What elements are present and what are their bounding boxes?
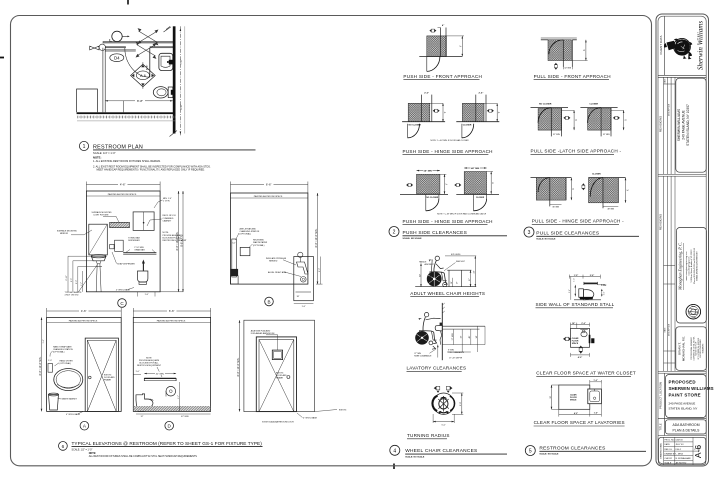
svg-text:(OPTIONAL): (OPTIONAL) bbox=[240, 233, 252, 236]
svg-text:36” MIN: 36” MIN bbox=[552, 207, 559, 209]
svg-text:SHERWIN WILLIAMS: SHERWIN WILLIAMS bbox=[669, 386, 714, 391]
svg-text:MEET HANDICAP REQUIREMENTS / F: MEET HANDICAP REQUIREMENTS / FUNCTIONALI… bbox=[97, 169, 206, 172]
svg-text:240 PAGE AVENUE: 240 PAGE AVENUE bbox=[682, 110, 686, 140]
svg-text:NO CLOSER: NO CLOSER bbox=[539, 104, 552, 106]
svg-text:1’-0”: 1’-0” bbox=[574, 275, 578, 277]
svg-text:PROVIDE ADEQUATE: PROVIDE ADEQUATE bbox=[139, 359, 160, 362]
svg-text:240 PAGE AVENUE: 240 PAGE AVENUE bbox=[669, 402, 696, 406]
svg-text:Sherwin Williams: Sherwin Williams bbox=[697, 21, 705, 70]
svg-text:RESTROOM PLAN: RESTROOM PLAN bbox=[93, 144, 143, 150]
svg-text:SCALE: NO SCALE: SCALE: NO SCALE bbox=[536, 238, 556, 241]
svg-text:SCALE: NO SCALE: SCALE: NO SCALE bbox=[405, 455, 425, 458]
svg-text:SCALE: SCALE bbox=[664, 462, 671, 465]
svg-text:SURFACE MOUNTED: SURFACE MOUNTED bbox=[57, 229, 78, 232]
svg-text:3: 3 bbox=[528, 230, 531, 236]
svg-text:1’-5”: 1’-5” bbox=[603, 291, 605, 295]
svg-text:8’-0” / 10’-0” MIN.: 8’-0” / 10’-0” MIN. bbox=[176, 231, 179, 250]
svg-text:ADA BATHROOM: ADA BATHROOM bbox=[672, 423, 699, 427]
svg-text:DATE: DATE bbox=[664, 443, 670, 446]
svg-text:27”: 27” bbox=[457, 281, 459, 284]
svg-text:CLOSER: CLOSER bbox=[592, 174, 601, 176]
svg-text:1’-0”: 1’-0” bbox=[48, 360, 52, 362]
svg-text:8’-8”: 8’-8” bbox=[137, 99, 143, 103]
svg-text:AS NOTED: AS NOTED bbox=[676, 462, 687, 465]
svg-text:1’-6”: 1’-6” bbox=[145, 294, 149, 296]
svg-text:KNEE CLEARANCE: KNEE CLEARANCE bbox=[414, 355, 432, 358]
svg-text:ANTI-STRAT AND: ANTI-STRAT AND bbox=[240, 228, 257, 231]
svg-text:2’-9”: 2’-9” bbox=[569, 289, 571, 293]
svg-text:1’-0”: 1’-0” bbox=[231, 243, 235, 245]
svg-text:7’-0”: 7’-0” bbox=[179, 59, 183, 64]
svg-text:1’-6”: 1’-6” bbox=[593, 380, 597, 382]
svg-text:SURFACE MOUNTED: SURFACE MOUNTED bbox=[92, 211, 113, 214]
svg-text:8’-0” / 10’-0” MIN.: 8’-0” / 10’-0” MIN. bbox=[315, 228, 318, 247]
svg-text:2’-6”: 2’-6” bbox=[581, 323, 585, 325]
svg-text:43”: 43” bbox=[474, 270, 476, 273]
svg-text:FIG-2: FIG-2 bbox=[676, 449, 682, 451]
svg-text:FRAME: FRAME bbox=[104, 379, 112, 382]
svg-text:30”: 30” bbox=[550, 395, 552, 398]
svg-text:CLOSER: CLOSER bbox=[589, 104, 598, 106]
svg-text:PROPOSED: PROPOSED bbox=[669, 380, 696, 385]
svg-text:A-6: A-6 bbox=[140, 74, 146, 78]
svg-text:4’-0”: 4’-0” bbox=[578, 356, 582, 359]
svg-text:4 NOT ON STD: 4 NOT ON STD bbox=[65, 294, 80, 296]
svg-text:32” MIN: 32” MIN bbox=[553, 134, 560, 136]
svg-text:MIRROR: MIRROR bbox=[60, 233, 69, 235]
svg-text:BLOCKING FOR ALL: BLOCKING FOR ALL bbox=[139, 362, 159, 365]
svg-text:2’-10”: 2’-10” bbox=[66, 275, 68, 280]
svg-text:PULL SIDE - HINGE SIDE APPRO: PULL SIDE - HINGE SIDE APPROACH - bbox=[532, 219, 624, 224]
svg-text:DESCRIPTION: DESCRIPTION bbox=[668, 103, 670, 116]
svg-text:48” MIN: 48” MIN bbox=[471, 167, 480, 170]
svg-text:1: 1 bbox=[83, 144, 86, 150]
svg-text:TITLE: TITLE bbox=[659, 423, 663, 431]
svg-text:(OPTIONAL): (OPTIONAL) bbox=[60, 362, 72, 365]
svg-text:5’-0”: 5’-0” bbox=[460, 402, 462, 406]
svg-text:NOTE: Y = 60” MIN. IF DOOR HAS: NOTE: Y = 60” MIN. IF DOOR HAS CLOSER bbox=[431, 139, 470, 142]
svg-text:42” MIN.: 42” MIN. bbox=[181, 416, 189, 418]
svg-text:30”: 30” bbox=[419, 274, 421, 277]
svg-text:TYPICAL ELEVATIONS @ RESTROOM: TYPICAL ELEVATIONS @ RESTROOM (REFER TO … bbox=[72, 441, 263, 446]
svg-text:ARM REST: ARM REST bbox=[425, 263, 435, 266]
svg-text:TOE CLEARANCE: TOE CLEARANCE bbox=[448, 351, 465, 354]
svg-text:B. MONAGHAN: B. MONAGHAN bbox=[676, 457, 691, 460]
svg-text:DATE: DATE bbox=[664, 78, 667, 83]
svg-text:2’-5”: 2’-5” bbox=[71, 278, 73, 282]
svg-text:PULL SIDE CLEARANCES: PULL SIDE CLEARANCES bbox=[536, 230, 599, 236]
svg-text:SCALE: 1/4” = 1’-0”: SCALE: 1/4” = 1’-0” bbox=[93, 151, 116, 155]
svg-text:TOWEL BAR: TOWEL BAR bbox=[128, 236, 140, 239]
svg-text:1’-6”: 1’-6” bbox=[302, 306, 306, 308]
svg-text:5: 5 bbox=[529, 449, 532, 455]
svg-text:LIGHT FIXTURE: LIGHT FIXTURE bbox=[94, 214, 110, 216]
svg-text:18”: 18” bbox=[572, 323, 575, 325]
svg-text:2’-8”: 2’-8” bbox=[179, 104, 183, 109]
svg-text:42” MIN.: 42” MIN. bbox=[156, 373, 165, 375]
svg-text:CHANGING STATION: CHANGING STATION bbox=[240, 230, 260, 233]
svg-text:12”: 12” bbox=[141, 416, 144, 418]
svg-text:RESTROOM EQUIPMENT: RESTROOM EQUIPMENT bbox=[137, 365, 162, 367]
svg-text:WHEEL CHAIR CLEARANCES: WHEEL CHAIR CLEARANCES bbox=[405, 448, 477, 454]
svg-text:REVISIONS: REVISIONS bbox=[658, 116, 662, 132]
svg-text:CHK BY: CHK BY bbox=[664, 458, 672, 460]
svg-text:5’-0”: 5’-0” bbox=[442, 425, 446, 427]
svg-text:EYE LEVEL: EYE LEVEL bbox=[451, 254, 461, 256]
svg-text:DOOR AND: DOOR AND bbox=[104, 376, 115, 379]
svg-text:WASTE BASKET: WASTE BASKET bbox=[62, 398, 78, 401]
svg-text:CLEAR: CLEAR bbox=[572, 337, 579, 340]
svg-text:1’-0”: 1’-0” bbox=[135, 371, 139, 373]
svg-text:6’-6”: 6’-6” bbox=[266, 183, 272, 187]
svg-text:8’-0” / 10’-0” MIN.: 8’-0” / 10’-0” MIN. bbox=[237, 357, 240, 376]
svg-text:6: 6 bbox=[62, 444, 65, 449]
svg-text:DISPENSER: DISPENSER bbox=[128, 240, 140, 242]
svg-text:PROJECT LOCATION: PROJECT LOCATION bbox=[659, 382, 663, 409]
svg-text:LAVATORY CLEARANCES: LAVATORY CLEARANCES bbox=[407, 366, 467, 371]
svg-text:PAINT STORE: PAINT STORE bbox=[669, 393, 701, 398]
svg-text:4” VINYL BASE: 4” VINYL BASE bbox=[116, 288, 131, 291]
svg-text:DRAWN BY: DRAWN BY bbox=[664, 452, 676, 455]
svg-text:2’-3”: 2’-3” bbox=[76, 280, 78, 284]
svg-text:DATE: DATE bbox=[664, 327, 667, 332]
svg-text:32” MIN: 32” MIN bbox=[564, 67, 571, 69]
svg-text:PAINTED AS PER SW SPECS: PAINTED AS PER SW SPECS bbox=[157, 319, 186, 322]
svg-text:1’-6”: 1’-6” bbox=[594, 412, 598, 414]
svg-text:EXISTG: EXISTG bbox=[339, 410, 347, 412]
svg-text:1’-7”: 1’-7” bbox=[178, 395, 180, 399]
svg-text:2’-3”: 2’-3” bbox=[319, 268, 321, 272]
svg-text:2’-6”: 2’-6” bbox=[478, 92, 483, 94]
svg-text:SCALE: NO SCALE: SCALE: NO SCALE bbox=[403, 237, 423, 240]
svg-text:CLEAR: CLEAR bbox=[570, 394, 577, 397]
svg-text:PAINTED AS PER SW SPECS: PAINTED AS PER SW SPECS bbox=[69, 319, 98, 322]
svg-text:4”: 4” bbox=[442, 24, 444, 27]
svg-text:CHANGING STATION: CHANGING STATION bbox=[53, 348, 73, 351]
svg-text:PAINTED AS PER SW SPECS: PAINTED AS PER SW SPECS bbox=[254, 195, 283, 198]
svg-text:Phone 802-222-4535 Fax 802-2: Phone 802-222-4535 Fax 802-222-9518 bbox=[694, 247, 696, 284]
svg-text:HAND STRAP BABY: HAND STRAP BABY bbox=[53, 346, 72, 349]
svg-text:34”: 34” bbox=[476, 335, 478, 338]
svg-text:PUSH SIDE CLEARANCES: PUSH SIDE CLEARANCES bbox=[403, 230, 468, 236]
svg-text:(OPTIONAL): (OPTIONAL) bbox=[53, 351, 65, 354]
svg-text:19”: 19” bbox=[461, 335, 463, 338]
svg-text:SIGNATURE: SIGNATURE bbox=[702, 343, 705, 354]
svg-text:MONAGHAN, P.E.: MONAGHAN, P.E. bbox=[682, 336, 686, 362]
svg-text:STATEN ISLAND, NY 10307: STATEN ISLAND, NY 10307 bbox=[686, 104, 690, 146]
svg-text:FRAME: FRAME bbox=[276, 377, 284, 380]
svg-text:ALIGN. RIGHT ARM: ALIGN. RIGHT ARM bbox=[268, 271, 287, 274]
svg-text:ADA SIGN PLACARD: ADA SIGN PLACARD bbox=[251, 329, 271, 332]
svg-text:TYPICAL SHEETS: TYPICAL SHEETS bbox=[65, 291, 82, 294]
svg-text:RESTROOM CLEARANCES: RESTROOM CLEARANCES bbox=[539, 445, 605, 451]
svg-text:19”: 19” bbox=[451, 281, 453, 284]
svg-text:4’-0”: 4’-0” bbox=[574, 412, 578, 415]
svg-text:32” MIN: 32” MIN bbox=[603, 134, 610, 136]
svg-text:DRAWING DATA: DRAWING DATA bbox=[659, 443, 662, 459]
svg-text:HAND DRYER: HAND DRYER bbox=[60, 360, 74, 363]
svg-text:NOTE: Y = 48” MIN. IF DOOR HAS: NOTE: Y = 48” MIN. IF DOOR HAS CLOSER AN… bbox=[437, 212, 487, 215]
svg-text:ADULT WHEEL CHAIR HEIGHTS: ADULT WHEEL CHAIR HEIGHTS bbox=[410, 291, 485, 296]
svg-text:PULL SIDE - FRONT APPROACH: PULL SIDE - FRONT APPROACH bbox=[534, 74, 611, 79]
svg-text:www.monaghanengineering.com: www.monaghanengineering.com bbox=[686, 251, 688, 280]
svg-text:FOR AHEAD BATHROOM: FOR AHEAD BATHROOM bbox=[251, 332, 275, 335]
svg-text:NO CLOSER: NO CLOSER bbox=[426, 197, 438, 199]
svg-text:CLEAR FLOOR SPACE AT LAVATORIE: CLEAR FLOOR SPACE AT LAVATORIES bbox=[534, 420, 625, 425]
svg-text:18”: 18” bbox=[297, 296, 300, 298]
svg-text:NEEDED: NEEDED bbox=[269, 260, 278, 262]
svg-text:1. ALL EXISTING REST ROOM FI: 1. ALL EXISTING REST ROOM FIXTURES SHALL… bbox=[93, 160, 161, 163]
svg-text:1’-5”: 1’-5” bbox=[574, 278, 576, 282]
svg-text:EXISTG ADA BATHROOM DOOR: EXISTG ADA BATHROOM DOOR bbox=[262, 420, 294, 423]
svg-text:6’-6”: 6’-6” bbox=[169, 309, 175, 313]
svg-text:54” MIN: 54” MIN bbox=[424, 170, 433, 173]
svg-text:CLOSER: CLOSER bbox=[476, 197, 485, 199]
svg-text:4’-6”: 4’-6” bbox=[81, 309, 87, 313]
svg-text:DESCRIPTION: DESCRIPTION bbox=[668, 323, 670, 336]
svg-text:SIDE WALL OF STANDARD STALL: SIDE WALL OF STANDARD STALL bbox=[536, 302, 615, 307]
svg-text:GRAB BAR: GRAB BAR bbox=[134, 249, 145, 252]
svg-text:040703: 040703 bbox=[676, 440, 684, 442]
svg-text:CLIENT DATA: CLIENT DATA bbox=[659, 35, 663, 54]
svg-text:TPH: TPH bbox=[601, 283, 606, 287]
svg-text:CLOSER: CLOSER bbox=[463, 124, 472, 126]
svg-text:SHERWIN-WILLIAMS: SHERWIN-WILLIAMS bbox=[677, 108, 681, 141]
svg-text:SPACE: SPACE bbox=[570, 399, 577, 402]
svg-text:SEAT HGT: SEAT HGT bbox=[456, 260, 466, 263]
svg-text:PROJ. NO.: PROJ. NO. bbox=[664, 440, 675, 442]
svg-text:40”: 40” bbox=[469, 335, 471, 338]
svg-text:REF. DL: REF. DL bbox=[664, 449, 673, 451]
svg-text:512 Main Street, Bradford, V: 512 Main Street, Bradford, VT 05033 bbox=[690, 249, 693, 283]
svg-text:1’-6”: 1’-6” bbox=[43, 339, 45, 343]
svg-text:L. MINZ: L. MINZ bbox=[676, 453, 684, 455]
svg-text:REVISIONS: REVISIONS bbox=[658, 214, 662, 230]
svg-text:JULY 03: JULY 03 bbox=[676, 444, 685, 446]
svg-text:17”-19” DEPTH: 17”-19” DEPTH bbox=[449, 357, 463, 359]
svg-text:TURNING RADIUS: TURNING RADIUS bbox=[407, 433, 450, 438]
svg-text:48” MIN: 48” MIN bbox=[607, 208, 614, 210]
svg-text:B: B bbox=[267, 300, 270, 305]
svg-text:INSULATE PIPING AS: INSULATE PIPING AS bbox=[266, 257, 287, 260]
svg-text:(OPTIONAL): (OPTIONAL) bbox=[253, 244, 265, 247]
svg-text:4: 4 bbox=[393, 448, 396, 454]
svg-text:4” VINYL BASE: 4” VINYL BASE bbox=[303, 417, 318, 420]
svg-text:PAINTED AS PER SW SPECS: PAINTED AS PER SW SPECS bbox=[108, 193, 137, 196]
svg-text:27” MIN: 27” MIN bbox=[414, 353, 421, 355]
svg-text:NOTE:: NOTE: bbox=[93, 156, 101, 160]
svg-text:SPACE: SPACE bbox=[572, 342, 579, 345]
svg-text:SCALE: NO SCALE: SCALE: NO SCALE bbox=[539, 453, 559, 456]
svg-text:STATEN ISLAND, NY: STATEN ISLAND, NY bbox=[669, 407, 698, 411]
svg-text:CABINET: CABINET bbox=[163, 219, 172, 222]
svg-text:2’-6”: 2’-6” bbox=[590, 275, 594, 277]
svg-text:A-6: A-6 bbox=[693, 445, 703, 459]
svg-text:SOAP DISPENSER: SOAP DISPENSER bbox=[117, 262, 135, 265]
svg-text:4’-6”: 4’-6” bbox=[120, 183, 126, 187]
svg-text:Consulting Engineers: Consulting Engineers bbox=[688, 256, 691, 275]
svg-text:DOOR AND: DOOR AND bbox=[276, 374, 287, 377]
svg-text:CLEAR FLOOR SPACE AT WATER CLO: CLEAR FLOOR SPACE AT WATER CLOSET bbox=[536, 371, 636, 376]
svg-text:27”: 27” bbox=[469, 278, 471, 281]
svg-text:2: 2 bbox=[393, 230, 396, 236]
svg-text:PUSH SIDE - HINGE SIDE APPRO: PUSH SIDE - HINGE SIDE APPROACH bbox=[403, 219, 493, 224]
svg-text:2’-0”: 2’-0” bbox=[424, 92, 429, 94]
svg-text:PUSH SIDE - HINGE SIDE APPRO: PUSH SIDE - HINGE SIDE APPROACH bbox=[403, 149, 493, 154]
svg-text:PULL SIDE -LATCH SIDE APPROAC: PULL SIDE -LATCH SIDE APPROACH - bbox=[531, 149, 622, 154]
svg-text:PUSH SIDE - FRONT APPROACH: PUSH SIDE - FRONT APPROACH bbox=[403, 74, 482, 79]
svg-text:D4: D4 bbox=[114, 55, 120, 60]
svg-text:PLAN & DETAILS: PLAN & DETAILS bbox=[673, 428, 701, 432]
svg-text:ALL REST ROOM FIXTURES SHALL B: ALL REST ROOM FIXTURES SHALL BE COMPLIAN… bbox=[89, 455, 198, 458]
svg-text:EMAIL:MONENG@SOVER.NET: EMAIL:MONENG@SOVER.NET bbox=[696, 251, 699, 281]
svg-text:8’-8” A.F.F.: 8’-8” A.F.F. bbox=[180, 235, 183, 247]
svg-text:WASTE PAPER: WASTE PAPER bbox=[253, 241, 268, 244]
svg-text:1 T.P.H.: 1 T.P.H. bbox=[163, 201, 170, 203]
svg-text:8’-0” / 10’-0” MIN.: 8’-0” / 10’-0” MIN. bbox=[39, 356, 42, 375]
svg-text:17” MIN: 17” MIN bbox=[452, 333, 454, 340]
svg-text:4” VINYL BASE: 4” VINYL BASE bbox=[66, 413, 81, 416]
